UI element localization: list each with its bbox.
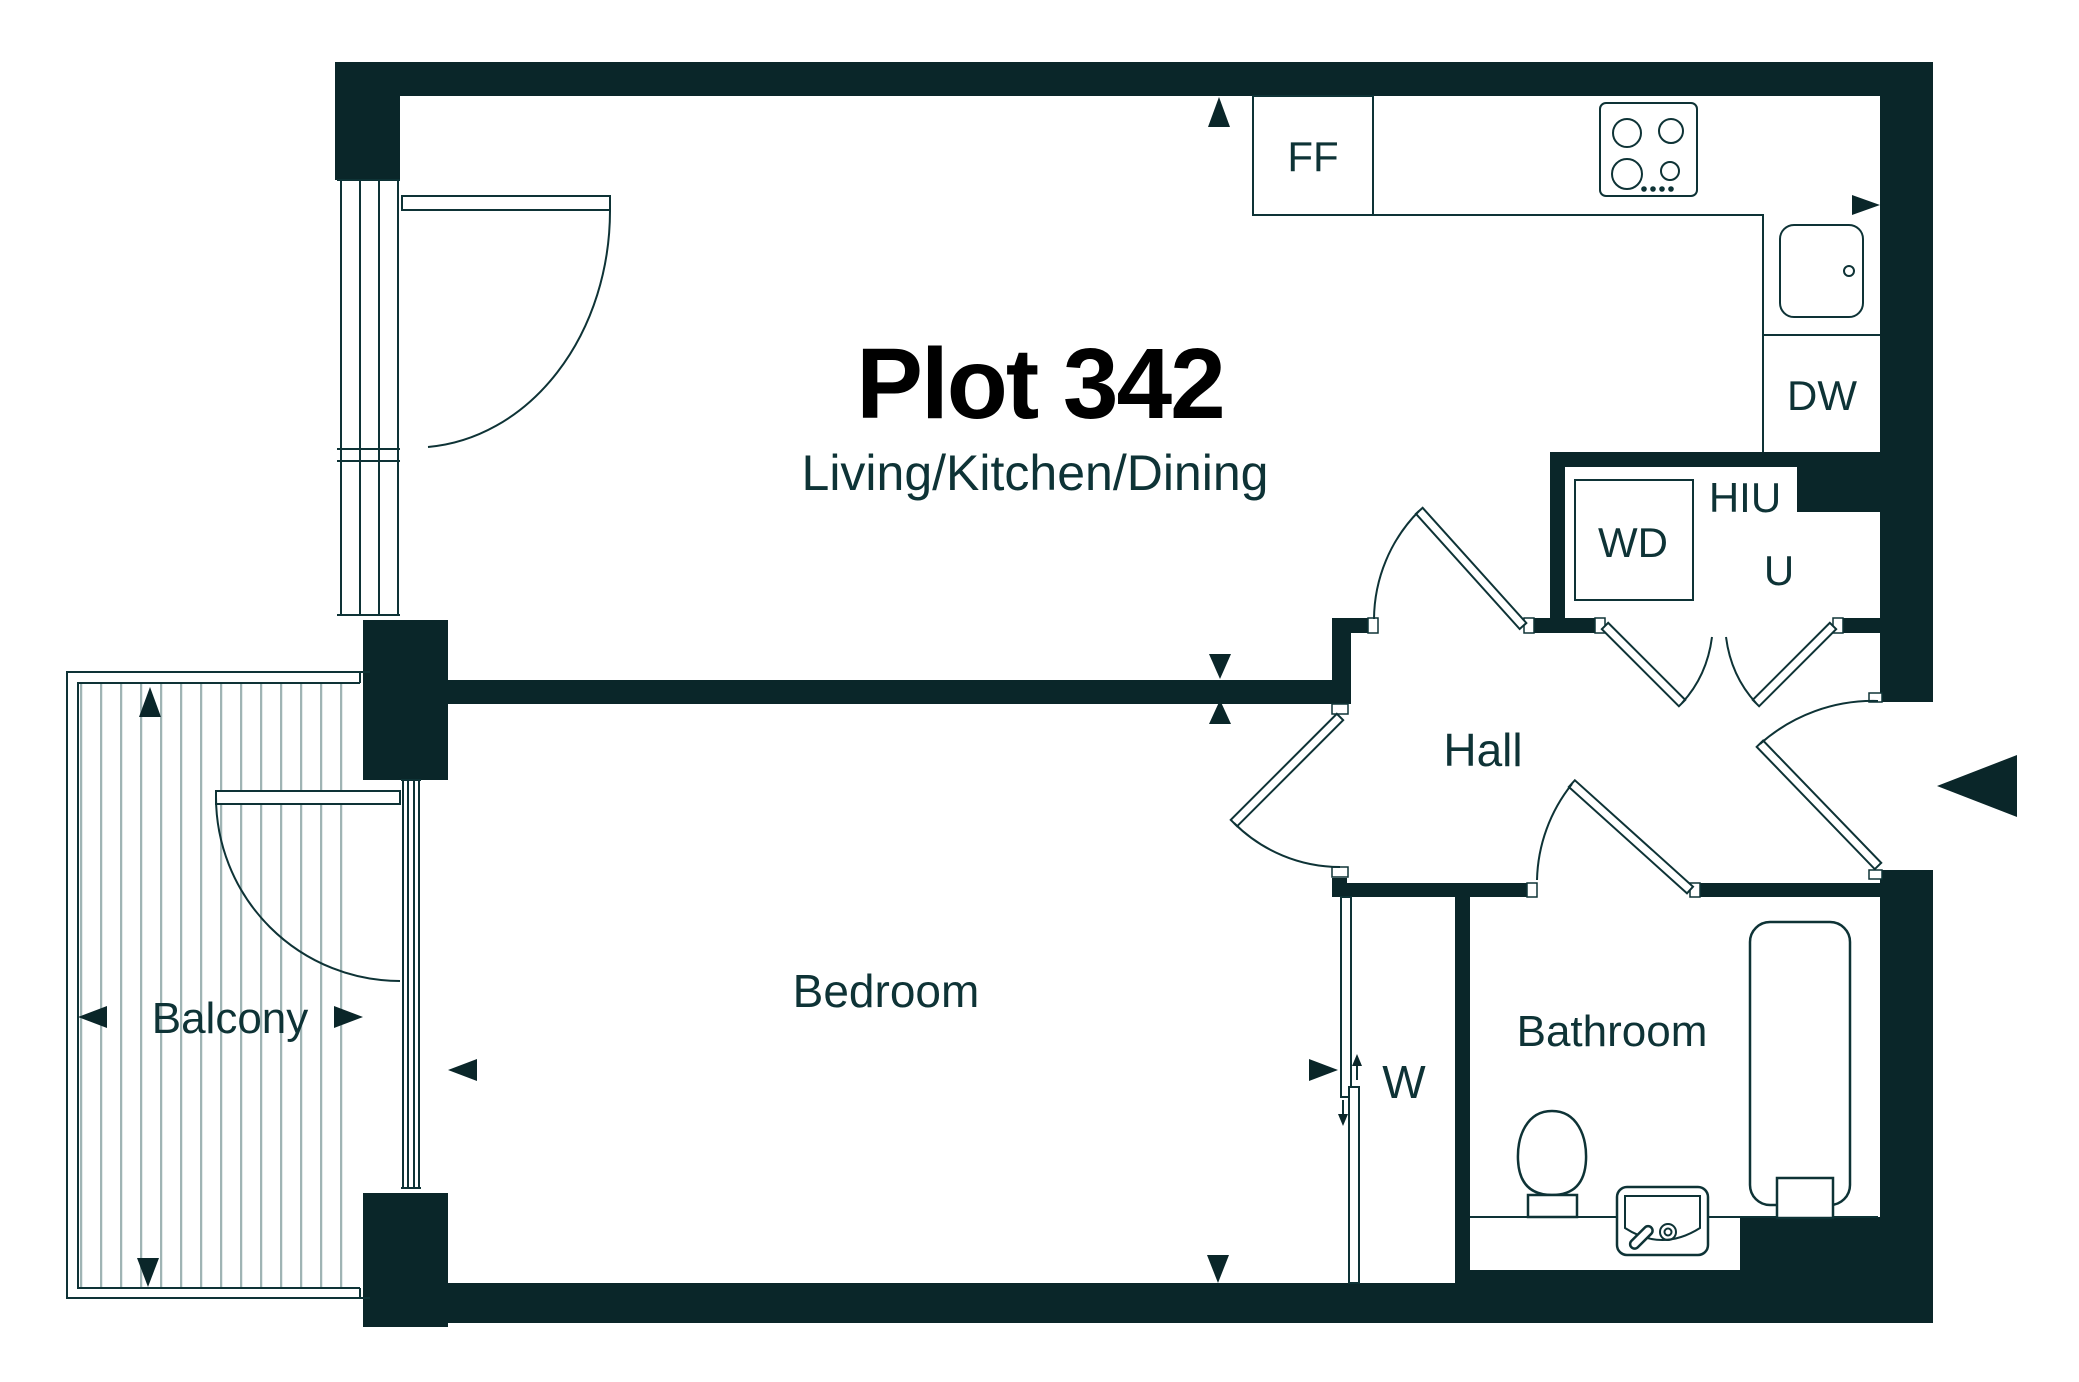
wardrobe-label: W [1382, 1056, 1426, 1108]
walls [335, 62, 1933, 1327]
living-kitchen-dining-label: Living/Kitchen/Dining [802, 445, 1269, 501]
wardrobe-door-panel-2 [1349, 1087, 1359, 1283]
wall-bathroom-se-block [1740, 1217, 1880, 1323]
wall-right-upper [1880, 96, 1933, 702]
bedroom-arrow-right-icon [1309, 1059, 1338, 1081]
bedroom-label: Bedroom [793, 965, 980, 1017]
wardrobe-door-panel-1 [1341, 897, 1351, 1097]
dimension-arrow-up-icon [1208, 97, 1230, 127]
wall-bottom-bathroom [1455, 1270, 1740, 1323]
hall-label: Hall [1443, 724, 1522, 776]
balcony-label: Balcony [152, 994, 309, 1043]
wall-corner-top-left [335, 62, 400, 180]
bathroom-fixtures [1470, 922, 1878, 1255]
cupboard-double-doors [1595, 618, 1843, 706]
wall-hall-bathroom-a [1332, 883, 1527, 897]
hall-bathroom-door [1527, 780, 1700, 897]
utility-cupboard-label: U [1764, 547, 1794, 594]
toilet-icon [1518, 1111, 1586, 1217]
balcony [67, 672, 370, 1298]
dishwasher-label: DW [1787, 372, 1857, 419]
wall-bottom-bedroom [440, 1283, 1455, 1323]
wall-hall-bathroom-b [1700, 883, 1880, 897]
kitchen-counter-outline [1253, 96, 1880, 452]
washer-dryer-label: WD [1598, 519, 1668, 566]
heat-interface-unit-label: HIU [1709, 474, 1781, 521]
dimension-arrow-down-divider-icon [1209, 654, 1231, 679]
doors [216, 196, 1882, 981]
wall-top [335, 62, 1933, 96]
living-room-window [337, 180, 400, 615]
living-hall-door [1368, 508, 1534, 633]
bedroom-arrow-left-icon [448, 1059, 477, 1081]
living-balcony-door [402, 196, 610, 447]
wall-right-lower [1880, 870, 1933, 1323]
wall-hall-top-c [1843, 618, 1880, 633]
bathroom-label: Bathroom [1517, 1007, 1708, 1056]
wall-divider-living-bedroom [405, 680, 1332, 704]
wardrobe-sliding-doors [1338, 897, 1362, 1283]
bathtub-icon [1750, 922, 1850, 1218]
bedroom-window [401, 780, 421, 1188]
dimension-arrow-right-kitchen-icon [1852, 195, 1880, 215]
entrance-arrow-icon [1937, 755, 2017, 817]
fridge-freezer-label: FF [1287, 133, 1338, 180]
kitchen [1253, 96, 1880, 452]
hob-icon [1600, 103, 1697, 196]
entrance-door [1757, 693, 1882, 879]
wall-bathroom-left [1455, 897, 1470, 1270]
wall-cupboard-corner-block [1797, 452, 1880, 512]
wall-cupboard-left [1550, 452, 1565, 633]
kitchen-sink-icon [1780, 225, 1863, 317]
balcony-decking [80, 683, 360, 1288]
floor-plan: Plot 342 Living/Kitchen/Dining Hall Bedr… [0, 0, 2079, 1382]
basin-icon [1617, 1187, 1708, 1255]
hall-bedroom-door [1231, 704, 1348, 877]
wall-hall-top-a [1332, 618, 1370, 633]
plot-title: Plot 342 [856, 328, 1224, 440]
dimension-arrow-down-icon [1207, 1255, 1229, 1283]
wall-corner-bottom-left [363, 1193, 448, 1327]
